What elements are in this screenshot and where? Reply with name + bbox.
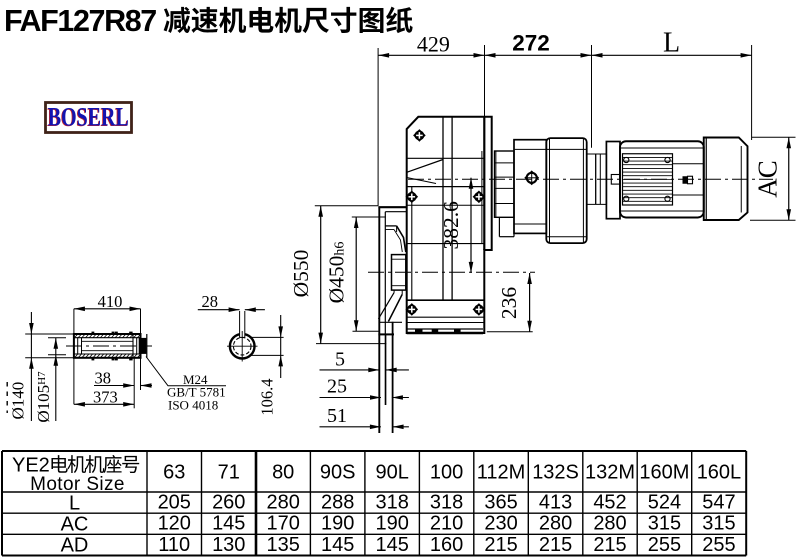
svg-text:215: 215: [539, 534, 572, 556]
svg-text:130: 130: [212, 534, 245, 556]
svg-text:318: 318: [430, 492, 463, 514]
svg-text:145: 145: [375, 534, 408, 556]
svg-text:255: 255: [648, 534, 681, 556]
svg-text:260: 260: [212, 492, 245, 514]
svg-text:160M: 160M: [639, 462, 689, 484]
svg-text:AD: AD: [61, 535, 89, 557]
svg-text:170: 170: [267, 513, 300, 535]
svg-text:L: L: [69, 493, 80, 515]
svg-text:63: 63: [163, 462, 185, 484]
svg-text:215: 215: [484, 534, 517, 556]
svg-text:365: 365: [484, 492, 517, 514]
svg-text:230: 230: [484, 513, 517, 535]
svg-text:BOSERL: BOSERL: [48, 103, 129, 132]
svg-text:547: 547: [702, 492, 735, 514]
svg-text:ISO 4018: ISO 4018: [168, 398, 218, 413]
svg-text:51: 51: [327, 405, 347, 427]
svg-text:38: 38: [95, 368, 112, 387]
svg-text:AC: AC: [753, 160, 783, 198]
svg-text:413: 413: [539, 492, 572, 514]
svg-text:315: 315: [648, 513, 681, 535]
svg-text:382.6: 382.6: [439, 201, 463, 250]
svg-text:100: 100: [430, 462, 463, 484]
svg-text:132M: 132M: [585, 462, 635, 484]
svg-text:135: 135: [267, 534, 300, 556]
svg-text:318: 318: [375, 492, 408, 514]
svg-text:145: 145: [212, 513, 245, 535]
svg-text:145: 145: [321, 534, 354, 556]
svg-text:132S: 132S: [532, 462, 579, 484]
svg-text:524: 524: [648, 492, 681, 514]
svg-text:90L: 90L: [375, 462, 408, 484]
svg-text:272: 272: [512, 31, 550, 56]
svg-text:410: 410: [98, 292, 123, 311]
svg-text:190: 190: [321, 513, 354, 535]
svg-text:452: 452: [593, 492, 626, 514]
svg-text:288: 288: [321, 492, 354, 514]
svg-text:112M: 112M: [477, 462, 526, 484]
svg-text:28: 28: [201, 292, 218, 311]
svg-text:236: 236: [497, 287, 521, 320]
svg-text:215: 215: [593, 534, 626, 556]
svg-text:Ø140: Ø140: [8, 382, 27, 420]
svg-text:90S: 90S: [320, 462, 356, 484]
svg-text:160L: 160L: [697, 462, 742, 484]
svg-text:110: 110: [158, 534, 190, 556]
svg-text:280: 280: [593, 513, 626, 535]
svg-text:280: 280: [267, 492, 300, 514]
svg-text:255: 255: [702, 534, 735, 556]
svg-text:AC: AC: [61, 514, 89, 536]
svg-text:FAF127R87: FAF127R87: [4, 4, 156, 38]
svg-text:Motor Size: Motor Size: [30, 474, 125, 495]
svg-text:315: 315: [702, 513, 735, 535]
svg-text:25: 25: [327, 376, 347, 398]
svg-text:106.4: 106.4: [257, 378, 276, 415]
svg-text:160: 160: [430, 534, 463, 556]
svg-text:373: 373: [93, 387, 118, 406]
svg-text:120: 120: [158, 513, 191, 535]
svg-text:80: 80: [272, 462, 294, 484]
svg-text:5: 5: [335, 349, 345, 371]
svg-text:190: 190: [375, 513, 408, 535]
svg-text:210: 210: [430, 513, 463, 535]
svg-text:429: 429: [417, 31, 450, 56]
svg-text:280: 280: [539, 513, 572, 535]
svg-text:205: 205: [158, 492, 191, 514]
svg-text:Ø550: Ø550: [289, 250, 313, 298]
svg-text:71: 71: [218, 462, 240, 484]
svg-text:L: L: [663, 28, 680, 59]
